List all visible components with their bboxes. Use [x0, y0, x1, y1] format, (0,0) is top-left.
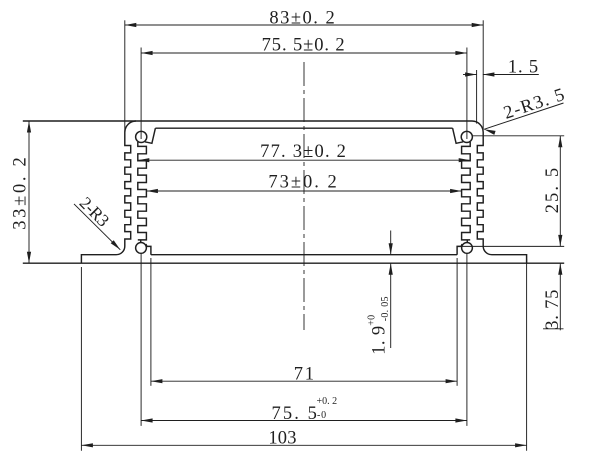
svg-text:33±0. 2: 33±0. 2 [10, 154, 30, 229]
svg-text:1. 9+0-0. 05: 1. 9+0-0. 05 [366, 296, 391, 355]
svg-text:2-R3: 2-R3 [76, 193, 114, 231]
svg-text:75. 5+0. 2-0: 75. 5+0. 2-0 [272, 396, 338, 424]
svg-text:103: 103 [268, 429, 296, 449]
svg-text:3. 75: 3. 75 [543, 289, 563, 330]
svg-text:71: 71 [294, 365, 316, 385]
svg-text:73±0. 2: 73±0. 2 [268, 172, 338, 192]
svg-text:1. 5: 1. 5 [508, 58, 539, 78]
svg-text:25. 5: 25. 5 [543, 166, 563, 214]
svg-text:2-R3. 5: 2-R3. 5 [501, 85, 568, 124]
svg-text:77. 3±0. 2: 77. 3±0. 2 [260, 142, 347, 162]
svg-text:75. 5±0. 2: 75. 5±0. 2 [262, 36, 346, 56]
svg-text:83±0. 2: 83±0. 2 [269, 9, 336, 29]
